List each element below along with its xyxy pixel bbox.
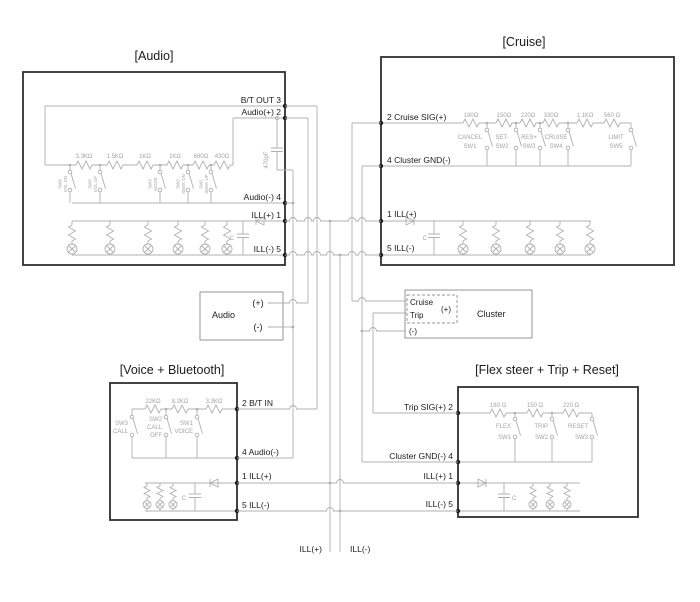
resistor-icon <box>463 119 479 127</box>
switch-label: RES+ <box>521 135 537 141</box>
switch-label: RESET <box>568 424 588 430</box>
resistor-value: 330Ω <box>544 113 559 119</box>
bt-out-wire <box>285 106 317 409</box>
pin-label: 5 ILL(-) <box>242 500 270 510</box>
pin-label: Audio(-) 4 <box>244 192 282 202</box>
resistor-icon <box>543 119 559 127</box>
resistor-value: 180Ω <box>464 113 479 119</box>
resistor-value: 3.3KΩ <box>76 154 93 160</box>
connector-pos-row <box>283 300 308 303</box>
cruise-input-row <box>352 298 407 301</box>
junction-dot <box>292 326 295 329</box>
pin-label: 2 B/T IN <box>242 398 273 408</box>
resistor-icon <box>206 405 222 413</box>
switch-label: SW2 <box>535 435 549 441</box>
resistor-icon <box>604 119 620 127</box>
bottom-leads: ILL(+) ILL(-) <box>300 544 371 554</box>
switch-icon <box>590 417 597 439</box>
switch-icon <box>629 128 636 150</box>
ill-capacitor-icon <box>498 483 510 511</box>
cluster-gnd-wire <box>362 166 381 462</box>
signal-capacitor-icon <box>271 120 293 170</box>
lamp-branch <box>200 221 210 255</box>
flex-box-border <box>458 387 638 517</box>
resistor-icon <box>76 161 92 169</box>
pin-label: Cluster GND(-) 4 <box>389 451 453 461</box>
switch-icon <box>158 170 165 192</box>
cluster-label: Cluster <box>477 309 506 319</box>
voice-bluetooth-box: [Voice + Bluetooth] 22KΩ 8.2KΩ 3.3KΩ SW3… <box>110 363 279 520</box>
schematic-page: [Audio] 3.3KΩ 1.5KΩ 1KΩ 1KΩ 680Ω 430Ω SW… <box>0 0 700 602</box>
junction-dot <box>69 164 72 167</box>
junction-dot <box>187 164 190 167</box>
switch-label: SEEK UP <box>204 174 209 194</box>
flex-ill-buses <box>458 483 580 511</box>
switch-icon <box>98 170 105 192</box>
cluster-connector: Cruise Trip (+) Cluster (-) <box>405 290 532 338</box>
lamp-branch <box>458 221 468 255</box>
switch-label: CANCEL <box>458 135 483 141</box>
voice-title: [Voice + Bluetooth] <box>120 363 225 377</box>
switch-icon <box>485 128 492 150</box>
lamp-branch <box>555 221 565 255</box>
ill-capacitor-icon <box>237 221 249 255</box>
switch-label: SW3 <box>115 421 129 427</box>
lamp-branch <box>67 221 77 255</box>
junction-dot <box>539 122 542 125</box>
ill-pos-upper-row <box>285 218 381 221</box>
lamp-branch <box>173 221 183 255</box>
switch-icon <box>130 415 137 437</box>
resistor-value: 180 Ω <box>490 403 507 409</box>
lamp-branch <box>169 483 177 511</box>
pin-label: 4 Cluster GND(-) <box>387 155 451 165</box>
audio-pos-wire <box>285 118 308 303</box>
junction-dot <box>361 330 364 333</box>
switch-label: CALL <box>147 425 163 431</box>
resistor-value: 680Ω <box>194 154 209 160</box>
junction-dot <box>292 202 295 205</box>
pin-label: Trip SIG(+) 2 <box>404 402 453 412</box>
switch-label: SW2 <box>495 144 509 150</box>
cruise-sig-wire <box>352 123 381 301</box>
junction-dot <box>159 164 162 167</box>
switch-label: SW3 <box>575 435 589 441</box>
resistor-value: 560 Ω <box>604 113 621 119</box>
capacitor-label: 470pF <box>264 151 270 168</box>
resistor-value: 22KΩ <box>145 399 161 405</box>
junction-dot <box>210 164 213 167</box>
junction-dot <box>329 482 332 485</box>
resistor-value: 220 Ω <box>563 403 580 409</box>
junction-dot <box>165 408 168 411</box>
switch-label: VOL DN <box>63 176 68 193</box>
ill-capacitor-icon <box>189 483 201 511</box>
pin-label: ILL(+) 1 <box>251 210 281 220</box>
ill-capacitor-icon <box>428 221 440 255</box>
ill-neg-lead-label: ILL(-) <box>350 544 370 554</box>
switch-icon <box>513 417 520 439</box>
audio-connector-neg: (-) <box>254 322 263 332</box>
switch-label: FLEX <box>496 424 511 430</box>
switch-label: SW5 <box>88 179 93 189</box>
switch-icon <box>164 415 171 437</box>
cluster-trip-label: Trip <box>410 311 424 320</box>
junction-dot <box>196 408 199 411</box>
pin-label: ILL(-) 5 <box>254 244 282 254</box>
resistor-value: 1.5KΩ <box>107 154 124 160</box>
pin-label: 4 Audio(-) <box>242 447 279 457</box>
resistor-icon <box>520 119 536 127</box>
resistor-icon <box>107 161 123 169</box>
resistor-icon <box>167 161 183 169</box>
switch-label: SW3 <box>148 179 153 189</box>
audio-neg-wire <box>285 170 293 458</box>
junction-dot <box>551 412 554 415</box>
resistor-value: 3.3KΩ <box>206 399 223 405</box>
cluster-cruise-label: Cruise <box>410 298 434 307</box>
resistor-icon <box>193 161 209 169</box>
junction-dot <box>339 510 342 513</box>
switch-label: CRUISE <box>545 135 568 141</box>
resistor-icon <box>137 161 153 169</box>
cluster-pos-label: (+) <box>441 305 451 314</box>
switch-label: SW1 <box>180 421 194 427</box>
resistor-icon <box>563 409 579 417</box>
resistor-icon <box>172 405 188 413</box>
switch-label: SW6 <box>58 179 63 189</box>
lamp-branch <box>585 221 595 255</box>
switch-label: SET- <box>495 135 508 141</box>
lamp-branch <box>143 221 153 255</box>
junction-dot <box>515 122 518 125</box>
switch-icon <box>186 170 193 192</box>
pin-label: 1 ILL(+) <box>242 471 272 481</box>
pin-label: Audio(+) 2 <box>242 107 282 117</box>
switch-label: SW2 <box>176 179 181 189</box>
switch-icon <box>209 170 216 192</box>
capacitor-label: C <box>423 236 428 242</box>
junction-dot <box>486 122 489 125</box>
pin-label: 5 ILL(-) <box>387 243 415 253</box>
voice-ill-buses <box>145 483 237 511</box>
resistor-value: 1KΩ <box>139 154 151 160</box>
junction-dot <box>339 254 342 257</box>
switch-label: SW1 <box>463 144 477 150</box>
junction-dot <box>567 122 570 125</box>
lamp-branch <box>525 221 535 255</box>
capacitor-label: C <box>182 496 187 502</box>
audio-box: [Audio] 3.3KΩ 1.5KΩ 1KΩ 1KΩ 680Ω 430Ω SW… <box>23 49 293 265</box>
lamp-branch <box>563 483 571 511</box>
lamp-branch <box>143 483 151 511</box>
resistor-value: 150Ω <box>497 113 512 119</box>
switch-label: SEEK DN <box>181 174 186 194</box>
lamp-branch <box>156 483 164 511</box>
resistor-icon <box>145 405 161 413</box>
switch-label: SW3 <box>522 144 536 150</box>
junction-dot <box>514 412 517 415</box>
audio-connector: Audio (+) (-) <box>200 292 283 340</box>
resistor-icon <box>214 161 230 169</box>
cruise-box: [Cruise] 180Ω 150Ω 220Ω 330Ω 1.1KΩ 560 Ω… <box>379 35 674 265</box>
resistor-value: 220Ω <box>521 113 536 119</box>
switch-label: SW1 <box>199 179 204 189</box>
junction-dot <box>329 220 332 223</box>
harness-wiring <box>237 106 458 552</box>
resistor-value: 430Ω <box>215 154 230 160</box>
resistor-value: 1.1KΩ <box>577 113 594 119</box>
flex-trip-reset-box: [Flex steer + Trip + Reset] 180 Ω 150 Ω … <box>389 363 638 517</box>
pin-label: B/T OUT 3 <box>241 95 282 105</box>
pin-label: ILL(-) 5 <box>426 499 454 509</box>
cluster-neg-label: (-) <box>409 327 417 336</box>
switch-label: SW2 <box>149 417 163 423</box>
flex-title: [Flex steer + Trip + Reset] <box>475 363 619 377</box>
audio-connector-pos: (+) <box>252 298 263 308</box>
resistor-icon <box>527 409 543 417</box>
switch-label: SW4 <box>549 144 563 150</box>
resistor-value: 8.2KΩ <box>172 399 189 405</box>
resistor-value: 150 Ω <box>527 403 544 409</box>
pin-label: ILL(+) 1 <box>423 471 453 481</box>
switch-icon <box>195 415 202 437</box>
switch-label: CALL <box>113 429 129 435</box>
switch-label: MODE <box>153 177 158 191</box>
switch-label: SW1 <box>498 435 512 441</box>
switch-label: OFF <box>150 433 162 439</box>
flex-signal-wires <box>458 413 592 462</box>
audio-title: [Audio] <box>135 49 174 63</box>
switch-label: LIMIT <box>608 135 624 141</box>
pin-label: 2 Cruise SIG(+) <box>387 112 446 122</box>
lamp-branch <box>529 483 537 511</box>
wiring-diagram: [Audio] 3.3KΩ 1.5KΩ 1KΩ 1KΩ 680Ω 430Ω SW… <box>0 0 700 602</box>
ill-pos-lead-label: ILL(+) <box>300 544 323 554</box>
switch-label: SW5 <box>609 144 623 150</box>
capacitor-label: C <box>512 496 517 502</box>
audio-connector-leads <box>268 303 283 327</box>
resistor-icon <box>577 119 593 127</box>
pin-label: 1 ILL(+) <box>387 209 417 219</box>
resistor-icon <box>490 409 506 417</box>
lamp-branch <box>491 221 501 255</box>
switch-label: VOICE <box>174 429 193 435</box>
lamp-branch <box>546 483 554 511</box>
junction-dot <box>99 164 102 167</box>
resistor-icon <box>496 119 512 127</box>
lamp-branch <box>105 221 115 255</box>
resistor-value: 1KΩ <box>169 154 181 160</box>
ill-neg-upper-row <box>285 252 381 255</box>
cruise-title: [Cruise] <box>502 35 545 49</box>
cluster-neg-row <box>362 328 406 331</box>
switch-icon <box>68 170 75 192</box>
audio-connector-label: Audio <box>212 310 235 320</box>
switch-label: TRIP <box>534 424 548 430</box>
switch-label: VOL UP <box>93 176 98 192</box>
switch-icon <box>550 417 557 439</box>
